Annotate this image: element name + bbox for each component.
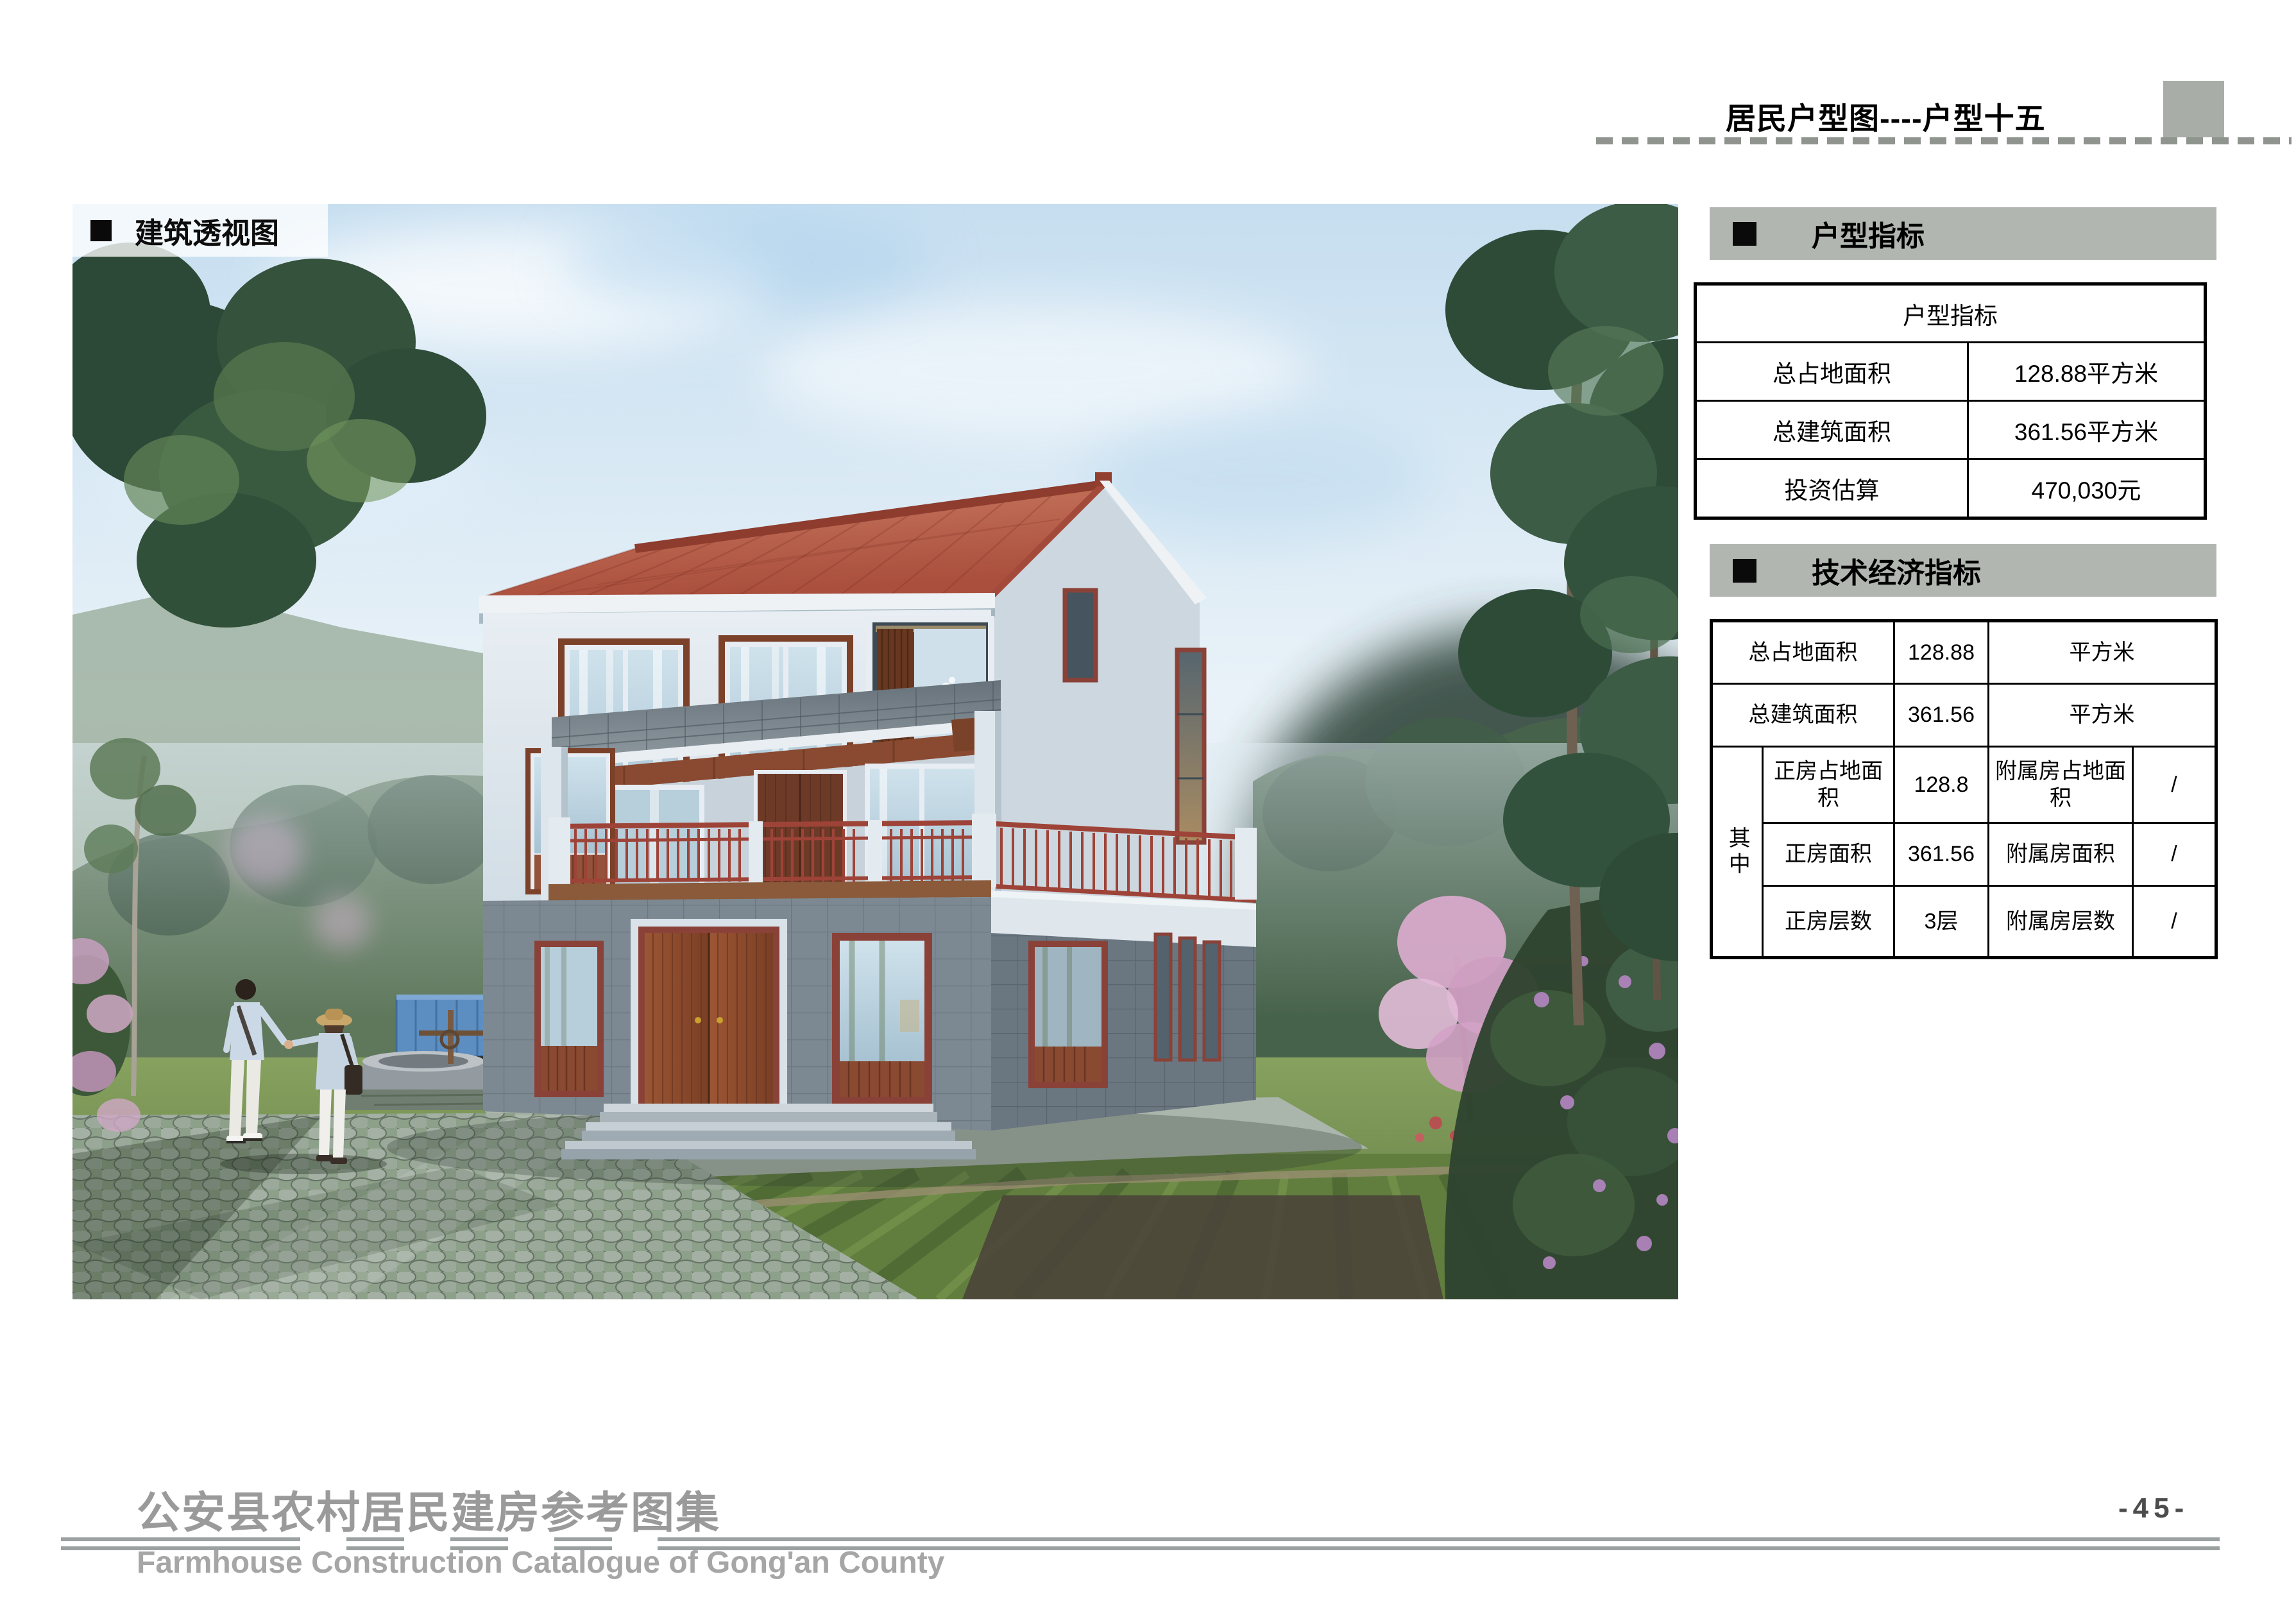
- table2-unit: 平方米: [1989, 684, 2216, 747]
- footer-rule-top: [61, 1537, 2220, 1541]
- table2-label: 正房面积: [1763, 823, 1894, 886]
- caption-bullet-square: [90, 220, 112, 241]
- gable-window: [1065, 590, 1096, 680]
- unit-indicator-table: 户型指标 总占地面积 128.88平方米 总建筑面积 361.56平方米 投资估…: [1694, 282, 2207, 520]
- header-corner-square: [2163, 81, 2224, 137]
- table2-value: 3层: [1894, 886, 1989, 958]
- table2-group-label: 其中: [1712, 747, 1763, 958]
- table2-label: 正房层数: [1763, 886, 1894, 958]
- section-header-unit-indicators: 户型指标: [1710, 207, 2216, 260]
- side-slit-windows: [1155, 934, 1220, 1060]
- table1-header-cell: 户型指标: [1696, 284, 2206, 343]
- table1-value: 361.56平方米: [1968, 401, 2206, 459]
- ground-floor-window-side: [1028, 941, 1108, 1088]
- catalogue-page: 居民户型图----户型十五: [0, 0, 2296, 1624]
- rendering-scene: [72, 204, 1678, 1299]
- table1-value: 128.88平方米: [1968, 343, 2206, 401]
- footer-title-english: Farmhouse Construction Catalogue of Gong…: [137, 1545, 944, 1580]
- table2-value: /: [2133, 747, 2216, 823]
- table2-label: 正房占地面积: [1763, 747, 1894, 823]
- technical-economic-table: 总占地面积 128.88 平方米 总建筑面积 361.56 平方米 其中 正房占…: [1710, 619, 2218, 959]
- table2-label: 附属房层数: [1989, 886, 2133, 958]
- table2-value: /: [2133, 823, 2216, 886]
- table2-value: 361.56: [1894, 823, 1989, 886]
- table1-label: 投资估算: [1696, 459, 1968, 518]
- entry-steps: [561, 1104, 976, 1159]
- footer-title-chinese: 公安县农村居民建房参考图集: [137, 1477, 720, 1541]
- main-entry-door: [631, 919, 787, 1110]
- table2-label: 总建筑面积: [1712, 684, 1894, 747]
- section-title: 技术经济指标: [1812, 550, 1981, 591]
- table2-value: 361.56: [1894, 684, 1989, 747]
- section-title: 户型指标: [1812, 213, 1925, 254]
- table2-unit: 平方米: [1989, 621, 2216, 684]
- ground-floor-window-left: [534, 941, 604, 1097]
- table1-label: 总建筑面积: [1696, 401, 1968, 459]
- side-strip-window: [1177, 650, 1204, 842]
- section-bullet-square: [1733, 222, 1756, 246]
- caption-text: 建筑透视图: [135, 210, 279, 252]
- table2-value: /: [2133, 886, 2216, 958]
- table1-label: 总占地面积: [1696, 343, 1968, 401]
- building-perspective-photo: [72, 204, 1678, 1299]
- photo-caption: 建筑透视图: [72, 204, 328, 257]
- header-dashed-rule: [1596, 137, 2292, 144]
- table2-label: 总占地面积: [1712, 621, 1894, 684]
- table2-label: 附属房面积: [1989, 823, 2133, 886]
- table2-label: 附属房占地面积: [1989, 747, 2133, 823]
- section-header-technical-indicators: 技术经济指标: [1710, 544, 2216, 597]
- table2-value: 128.8: [1894, 747, 1989, 823]
- table1-value: 470,030元: [1968, 459, 2206, 518]
- ground-floor-window-right: [832, 933, 932, 1105]
- page-title: 居民户型图----户型十五: [1726, 94, 2046, 138]
- section-bullet-square: [1733, 559, 1756, 583]
- table2-value: 128.88: [1894, 621, 1989, 684]
- page-number: -45-: [2118, 1492, 2189, 1525]
